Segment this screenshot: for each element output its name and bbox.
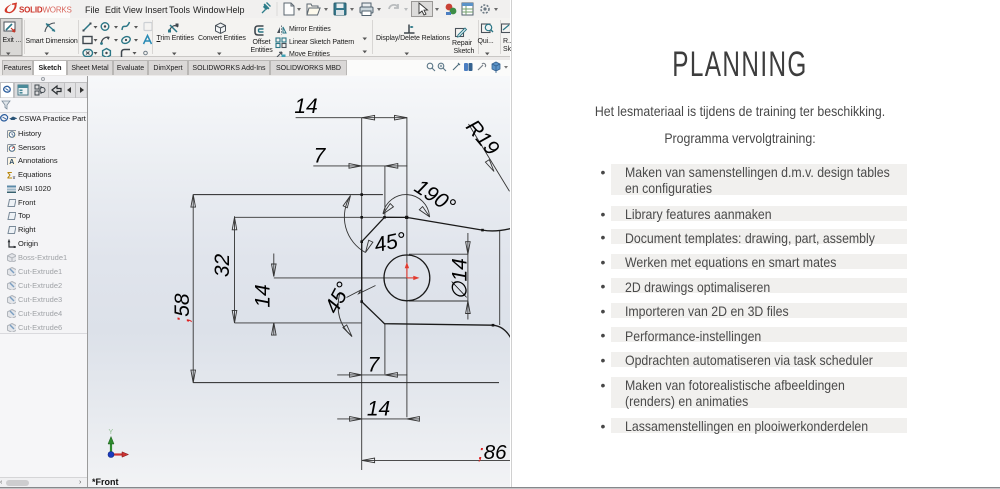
svg-text:32: 32 — [211, 254, 234, 278]
svg-text:45°: 45° — [372, 228, 408, 257]
svg-text:7: 7 — [368, 354, 381, 377]
svg-text:14: 14 — [367, 398, 390, 421]
svg-text:SOLIDWORKS: SOLIDWORKS — [19, 6, 72, 15]
svg-text:190°: 190° — [410, 175, 459, 218]
svg-text:A: A — [9, 159, 14, 165]
svg-text:14: 14 — [294, 95, 317, 118]
svg-text:45°: 45° — [321, 279, 356, 318]
svg-text:14: 14 — [252, 284, 275, 307]
svg-text:x: x — [13, 176, 16, 180]
svg-text:7: 7 — [314, 145, 327, 168]
svg-text:;86: ;86 — [478, 441, 507, 464]
svg-text:;58: ;58 — [171, 293, 194, 323]
svg-text:R19: R19 — [461, 116, 504, 161]
svg-text:Y: Y — [109, 429, 114, 436]
svg-text:∅14: ∅14 — [449, 258, 472, 300]
